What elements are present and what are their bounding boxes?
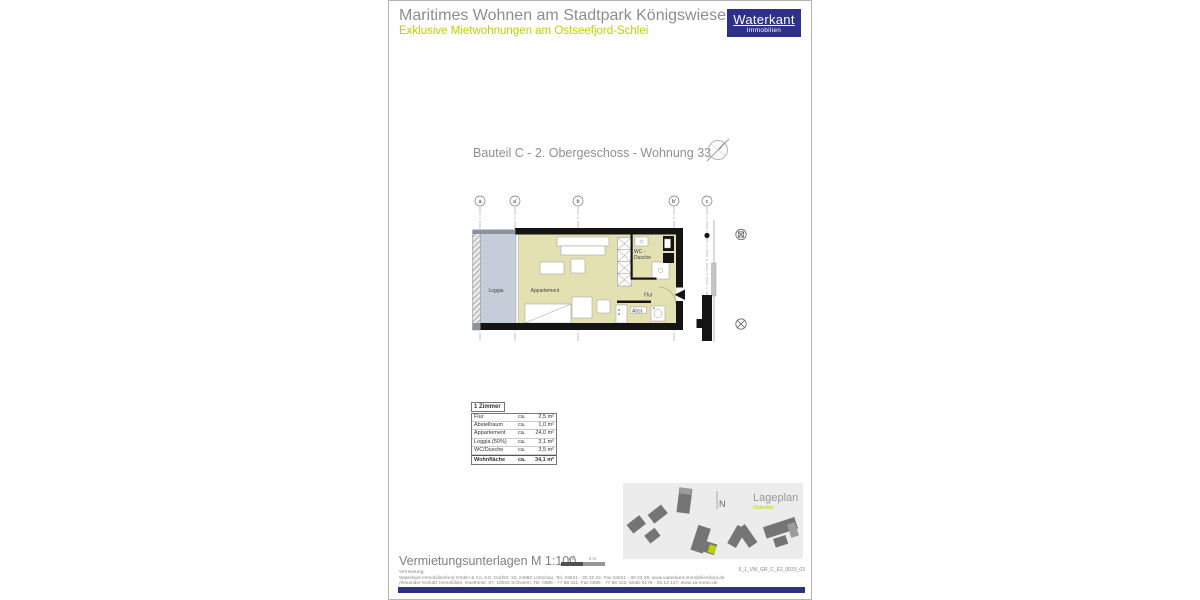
grid-label-b1: b'	[672, 199, 676, 205]
document-page: Maritimes Wohnen am Stadtpark Königswies…	[388, 0, 812, 600]
page-subtitle: Exklusive Mietwohnungen am Ostseefjord-S…	[399, 25, 648, 37]
shaft-fixture	[665, 239, 671, 248]
floorplan-drawing: a a' b b' c	[469, 191, 761, 346]
waterkant-logo: Waterkant Immobilien	[727, 9, 801, 37]
loggia-top-wall	[473, 230, 516, 235]
table-row: Flur ca. 2,5 m²	[472, 414, 556, 422]
siteplan-north-label: N	[719, 499, 726, 509]
siteplan-title: Lageplan	[753, 492, 798, 504]
table-row: WC/Dusche ca. 3,5 m²	[472, 447, 556, 455]
logo-subtitle: Immobilien	[727, 27, 801, 34]
room-label-flur: Flur	[644, 293, 653, 299]
footer-contact-line-2: Alexander Schultz Immobilien, Goethestr.…	[399, 581, 806, 587]
scale-label-2m: 2 m	[589, 556, 597, 561]
area-table: 1 Zimmer Flur ca. 2,5 m² Abstellraum ca.…	[471, 395, 557, 465]
plan-title: Bauteil C - 2. Obergeschoss - Wohnung 33	[473, 146, 711, 160]
section-symbol-top	[736, 229, 746, 239]
room-label-wc-2: Dusche	[634, 255, 651, 261]
siteplan: N Lageplan Standort	[623, 483, 803, 559]
footer-doc-type: Vermietungsunterlagen M 1:100	[399, 554, 576, 568]
loggia-window-line	[516, 234, 518, 323]
page-title: Maritimes Wohnen am Stadtpark Königswies…	[399, 7, 735, 25]
siteplan-subtitle: Standort	[753, 505, 774, 511]
north-arrow-icon	[703, 136, 735, 164]
loggia-bottom-wall	[473, 323, 481, 330]
area-table-header: 1 Zimmer	[471, 402, 505, 412]
grid-markers: a a' b b' c	[475, 196, 712, 206]
room-label-loggia: Loggia	[488, 288, 503, 294]
grid-label-b: b	[576, 199, 579, 205]
table-row: Loggia (50%) ca. 3,1 m²	[472, 439, 556, 447]
table-row: Appartement ca. 24,0 m²	[472, 430, 556, 438]
table-row: Abstellraum ca. 1,0 m²	[472, 422, 556, 430]
section-symbol-bottom	[736, 319, 746, 329]
logo-name: Waterkant	[727, 12, 801, 27]
loggia-floor	[481, 234, 517, 323]
kitchen-block	[618, 238, 632, 287]
grid-label-a1: a'	[513, 199, 517, 205]
scale-segment-light	[583, 562, 605, 566]
loggia-railing	[473, 231, 481, 330]
footer-brand-bar	[398, 587, 805, 593]
room-label-abstell: Abst.	[632, 309, 643, 315]
table-total-row: Wohnfläche ca. 34,1 m²	[472, 455, 556, 464]
scale-label-1m: 1 m	[568, 556, 576, 561]
scale-segment-dark	[561, 562, 583, 566]
grid-label-c: c	[706, 199, 709, 205]
footer-contact-block: Vermietung: Waterkant Immobilienfond Gmb…	[399, 570, 806, 587]
scale-bar: 1 m 2 m	[561, 556, 607, 566]
room-label-apartment: Appartement	[531, 288, 560, 294]
section-c-wall	[697, 220, 717, 342]
